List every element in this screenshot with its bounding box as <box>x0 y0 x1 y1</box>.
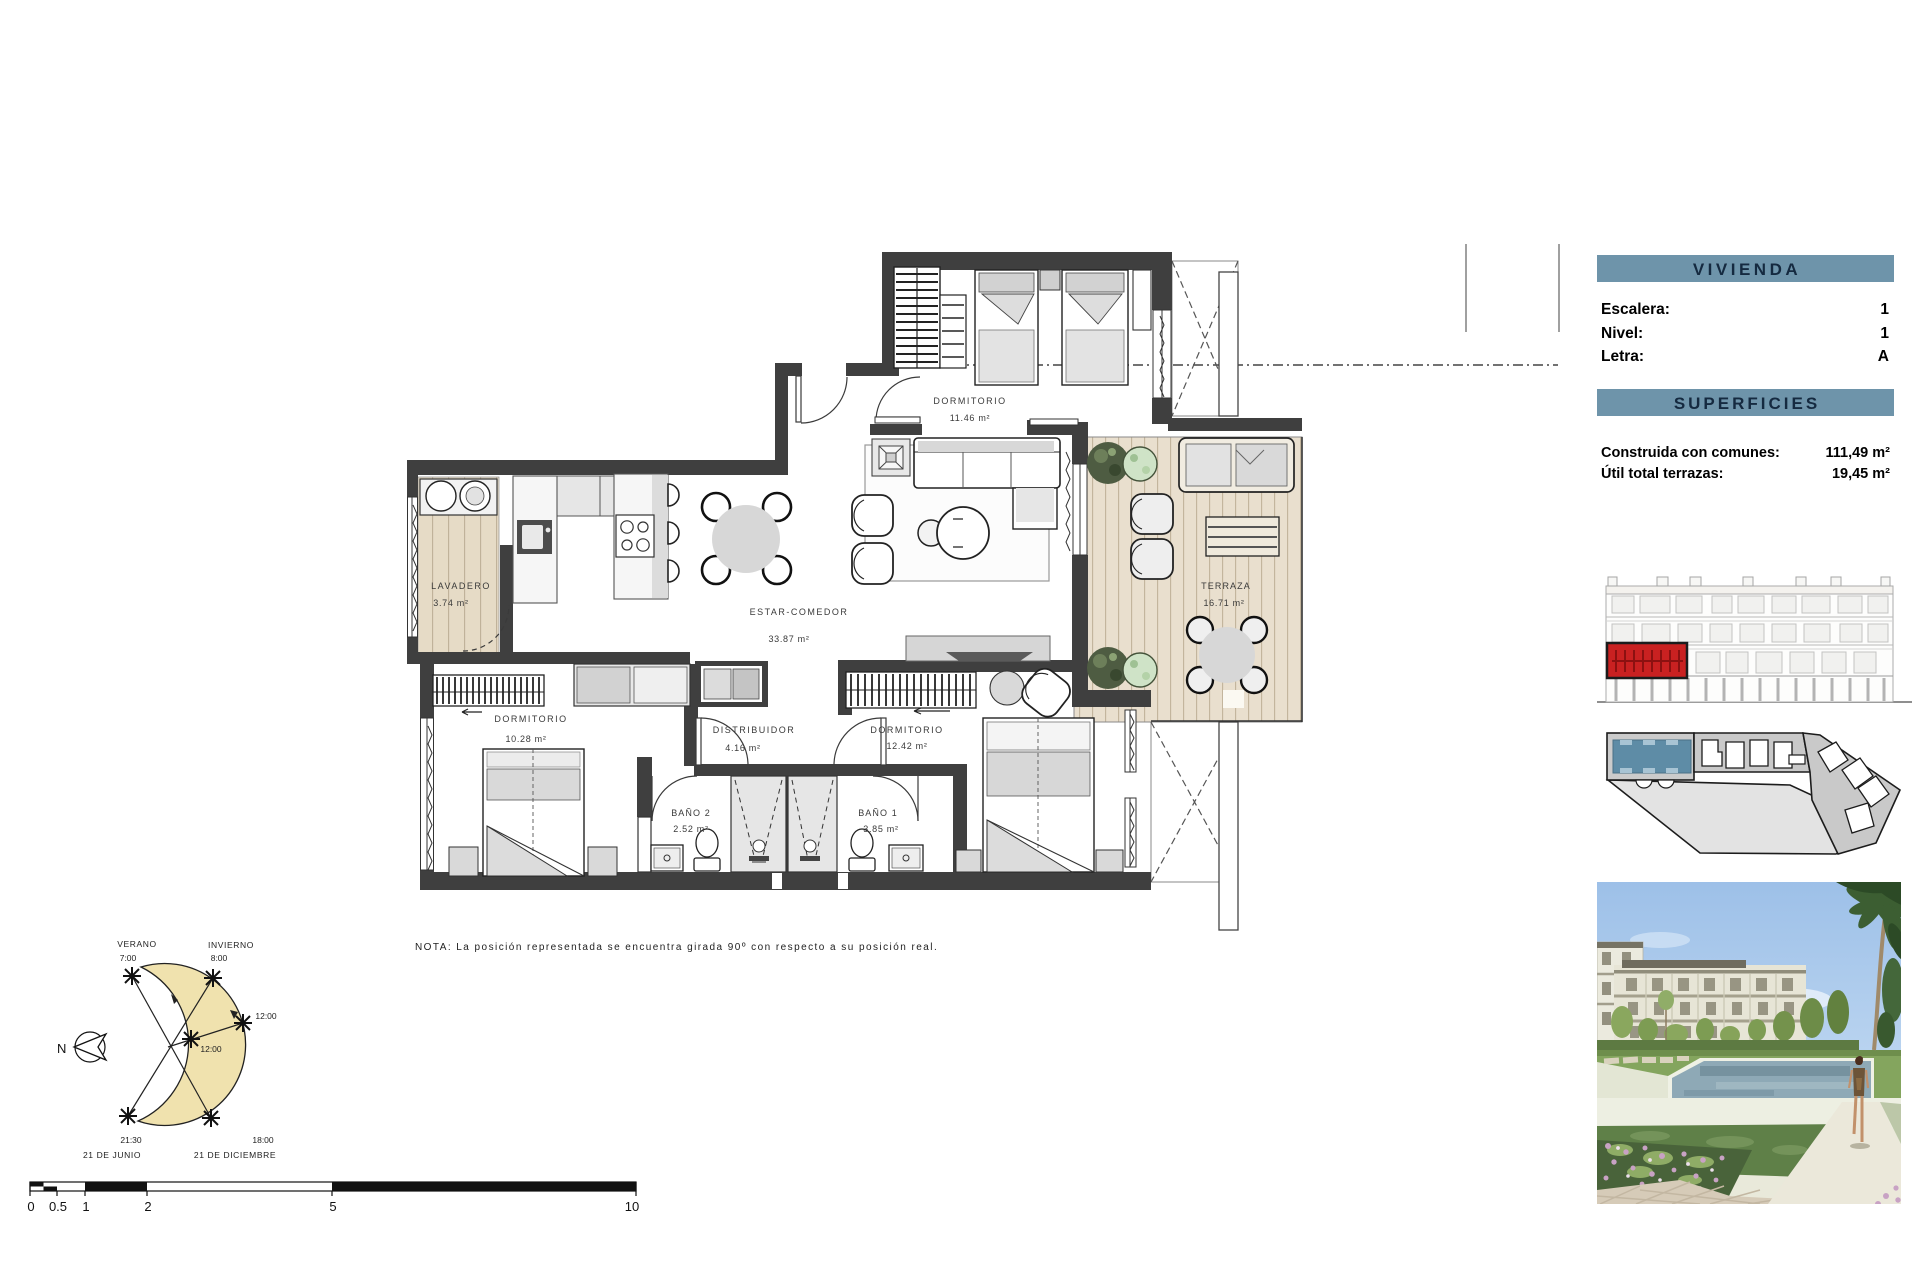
svg-text:21 DE JUNIO: 21 DE JUNIO <box>83 1150 141 1160</box>
svg-text:21 DE DICIEMBRE: 21 DE DICIEMBRE <box>194 1150 276 1160</box>
svg-text:NOTA: La posición representada: NOTA: La posición representada se encuen… <box>415 942 938 953</box>
svg-text:3.74 m²: 3.74 m² <box>433 598 468 608</box>
svg-text:N: N <box>57 1041 66 1056</box>
svg-text:33.87 m²: 33.87 m² <box>768 634 809 644</box>
svg-text:0: 0 <box>27 1199 34 1214</box>
svg-text:1: 1 <box>82 1199 89 1214</box>
svg-text:11.46 m²: 11.46 m² <box>950 413 990 423</box>
svg-text:DORMITORIO: DORMITORIO <box>870 725 943 735</box>
svg-text:7:00: 7:00 <box>120 953 137 963</box>
svg-text:2.52 m²: 2.52 m² <box>673 824 708 834</box>
svg-text:12.42 m²: 12.42 m² <box>886 741 927 751</box>
svg-text:0.5: 0.5 <box>49 1199 67 1214</box>
svg-text:DORMITORIO: DORMITORIO <box>494 714 567 724</box>
svg-text:Letra:: Letra: <box>1601 348 1644 365</box>
svg-text:8:00: 8:00 <box>211 953 228 963</box>
svg-text:1: 1 <box>1880 301 1889 318</box>
svg-text:10.28 m²: 10.28 m² <box>505 734 546 744</box>
svg-text:SUPERFICIES: SUPERFICIES <box>1674 394 1820 413</box>
svg-text:DORMITORIO: DORMITORIO <box>933 396 1006 406</box>
svg-text:VIVIENDA: VIVIENDA <box>1693 260 1801 279</box>
svg-text:12:00: 12:00 <box>200 1044 222 1054</box>
svg-text:21:30: 21:30 <box>120 1135 142 1145</box>
svg-text:DISTRIBUIDOR: DISTRIBUIDOR <box>713 725 796 735</box>
svg-text:A: A <box>1878 348 1889 365</box>
svg-text:Escalera:: Escalera: <box>1601 301 1670 318</box>
svg-text:18:00: 18:00 <box>252 1135 274 1145</box>
svg-text:2: 2 <box>144 1199 151 1214</box>
svg-text:12:00: 12:00 <box>255 1011 277 1021</box>
svg-text:111,49 m²: 111,49 m² <box>1826 445 1891 461</box>
svg-text:1: 1 <box>1880 325 1889 342</box>
svg-text:BAÑO 1: BAÑO 1 <box>858 808 898 818</box>
svg-text:INVIERNO: INVIERNO <box>208 940 254 950</box>
svg-text:4.16 m²: 4.16 m² <box>725 743 760 753</box>
svg-text:VERANO: VERANO <box>117 939 157 949</box>
svg-text:LAVADERO: LAVADERO <box>431 581 491 591</box>
svg-text:BAÑO 2: BAÑO 2 <box>671 808 711 818</box>
svg-text:ESTAR-COMEDOR: ESTAR-COMEDOR <box>750 607 849 617</box>
svg-text:5: 5 <box>329 1199 336 1214</box>
svg-text:10: 10 <box>625 1199 639 1214</box>
svg-text:Construida con comunes:: Construida con comunes: <box>1601 445 1780 461</box>
svg-text:Útil total terrazas:: Útil total terrazas: <box>1601 464 1723 482</box>
svg-text:Nivel:: Nivel: <box>1601 325 1643 342</box>
svg-text:3.85 m²: 3.85 m² <box>863 824 898 834</box>
svg-text:19,45 m²: 19,45 m² <box>1832 466 1890 482</box>
svg-text:TERRAZA: TERRAZA <box>1201 581 1251 591</box>
svg-text:16.71 m²: 16.71 m² <box>1203 598 1244 608</box>
